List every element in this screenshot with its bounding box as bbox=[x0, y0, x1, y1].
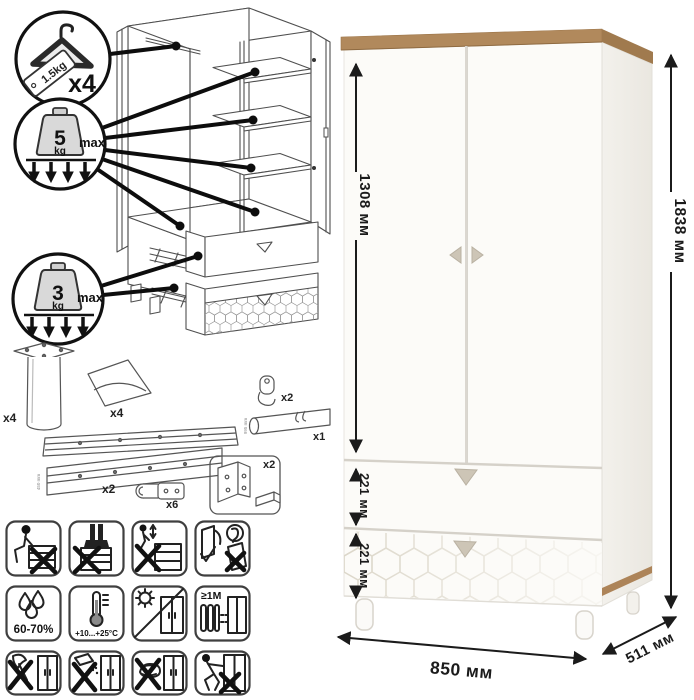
drawer-load-unit: kg bbox=[52, 301, 64, 312]
hanger-count: x4 bbox=[68, 70, 96, 98]
no-standing-icon bbox=[68, 520, 125, 577]
depth-label: 511 мм bbox=[623, 630, 676, 668]
distance-label: ≥1M bbox=[201, 590, 222, 602]
drawer-load-max: max bbox=[77, 290, 104, 305]
front-left-leg bbox=[356, 599, 373, 630]
hinges-count: x6 bbox=[166, 499, 178, 511]
product-render: 1308 мм 1838 мм 221 мм 221 мм 850 мм 511… bbox=[330, 0, 694, 700]
corner-handle-part bbox=[88, 360, 151, 406]
wardrobe-front bbox=[344, 42, 602, 606]
shelf-load-max: max bbox=[79, 135, 106, 150]
no-sitting-icon bbox=[5, 520, 62, 577]
top-drawer-label: 221 мм bbox=[357, 473, 371, 519]
slides-count: x2 bbox=[102, 482, 116, 496]
no-wet-cleaning-icon bbox=[131, 650, 188, 696]
no-spill-icon bbox=[68, 650, 125, 696]
drawer2-drawing bbox=[186, 273, 318, 340]
no-sharp-tools-icon bbox=[5, 650, 62, 696]
wardrobe-side bbox=[602, 42, 652, 606]
no-climbing-icon bbox=[131, 520, 188, 577]
product-sheet: 1.5kg x4 5 kg max bbox=[0, 0, 694, 700]
hardware-parts: x4 x4 x2 x1 995 mm x2 450 mm x6 x2 bbox=[0, 336, 332, 520]
temperature-label: +10...+25°C bbox=[75, 629, 118, 638]
door-height-label: 1308 мм bbox=[356, 173, 373, 236]
drawer-load-badge: 3 kg max bbox=[13, 254, 104, 344]
front-right-leg bbox=[576, 611, 593, 639]
rod-length: 995 mm bbox=[243, 418, 248, 435]
hinge-part bbox=[136, 483, 184, 499]
corner-handle-count: x4 bbox=[110, 406, 124, 420]
bottom-drawer-label: 221 мм bbox=[357, 543, 371, 589]
open-door bbox=[311, 31, 330, 234]
rod-holder-part bbox=[258, 376, 275, 405]
humidity-label: 60-70% bbox=[14, 624, 54, 636]
back-right-leg bbox=[627, 592, 639, 614]
close-doors-gently-icon bbox=[194, 520, 251, 577]
heater-distance-icon: ≥1M bbox=[194, 585, 251, 642]
no-dragging-icon bbox=[194, 650, 251, 696]
humidity-icon: 60-70% bbox=[5, 585, 62, 642]
care-icons-grid: 60-70% +10...+25°C bbox=[5, 520, 251, 696]
wardrobe-render bbox=[341, 29, 653, 639]
temperature-icon: +10...+25°C bbox=[68, 585, 125, 642]
shelf-load-badge: 5 kg max bbox=[15, 99, 106, 189]
brackets-count: x2 bbox=[263, 459, 275, 471]
slides-length: 450 mm bbox=[36, 474, 41, 491]
leg-part bbox=[14, 343, 74, 430]
no-sunlight-icon bbox=[131, 585, 188, 642]
hanger-load-badge: 1.5kg x4 bbox=[16, 12, 110, 106]
total-height-label: 1838 мм bbox=[671, 198, 688, 263]
width-label: 850 мм bbox=[429, 657, 493, 682]
rod-count: x1 bbox=[313, 431, 325, 443]
assembly-diagram: 1.5kg x4 5 kg max bbox=[0, 0, 332, 340]
rod-holder-count: x2 bbox=[281, 392, 293, 404]
shelf-load-unit: kg bbox=[54, 146, 66, 157]
leg-count: x4 bbox=[3, 411, 17, 425]
